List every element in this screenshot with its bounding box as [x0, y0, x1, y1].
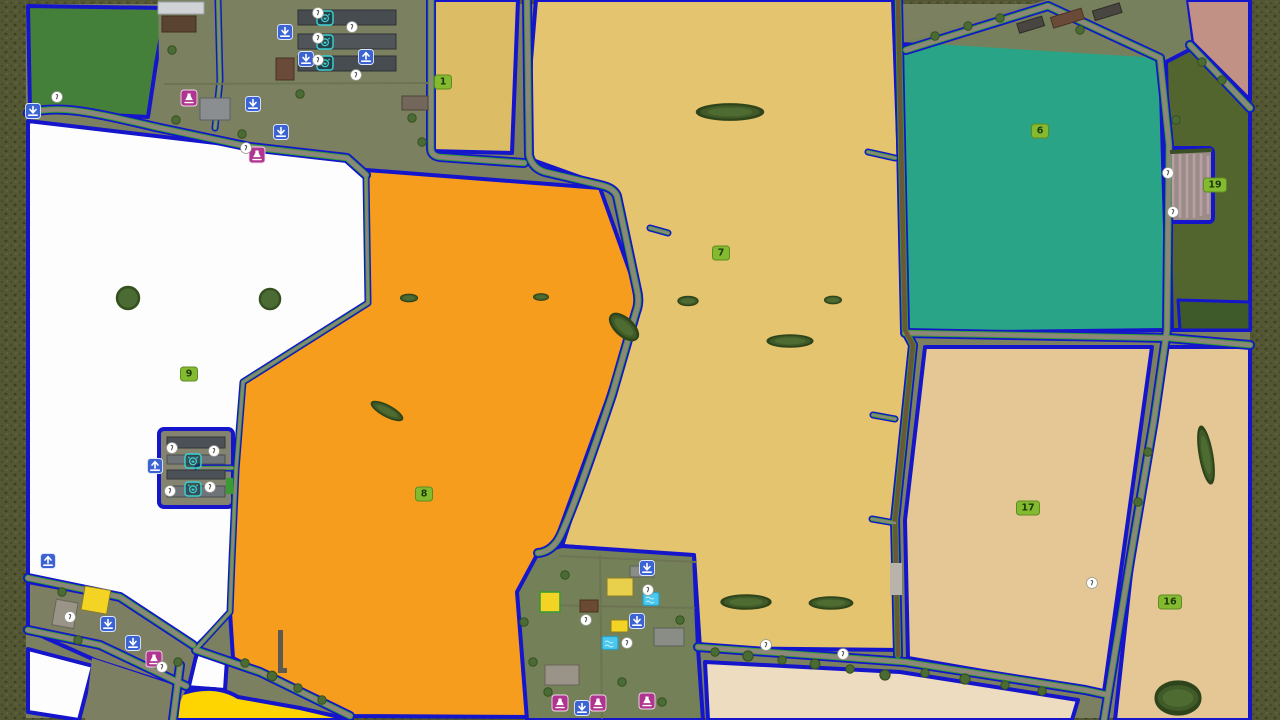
- point-of-interest-icon[interactable]: [838, 649, 849, 660]
- point-of-interest-icon[interactable]: [581, 615, 592, 626]
- field-topleft-green: [28, 6, 166, 117]
- pole-foot: [278, 668, 287, 673]
- point-of-interest-icon[interactable]: [205, 482, 216, 493]
- field-label-8: 8: [416, 487, 433, 501]
- farm-map-screen: 1 6 7 8 9 16 17 19: [0, 0, 1280, 720]
- hedge: [678, 297, 698, 306]
- point-of-interest-icon[interactable]: [65, 612, 76, 623]
- hedge: [768, 335, 812, 347]
- sell-point-icon[interactable]: [274, 125, 289, 140]
- production-point-icon[interactable]: [181, 90, 197, 106]
- field-label-text: 8: [421, 489, 428, 500]
- production-point-icon[interactable]: [590, 695, 606, 711]
- hedge: [534, 294, 549, 301]
- hedge: [722, 595, 770, 609]
- hedge: [825, 296, 842, 304]
- pig-pen-icon[interactable]: [185, 482, 201, 496]
- sell-point-icon[interactable]: [26, 104, 41, 119]
- point-of-interest-icon[interactable]: [313, 55, 324, 66]
- field-label-text: 6: [1037, 126, 1044, 137]
- field-label-text: 9: [186, 369, 193, 380]
- sell-point-icon[interactable]: [278, 25, 293, 40]
- point-of-interest-icon[interactable]: [761, 640, 772, 651]
- point-of-interest-icon[interactable]: [241, 143, 252, 154]
- field-label-7: 7: [713, 246, 730, 260]
- sell-point-icon[interactable]: [246, 97, 261, 112]
- field-label-19: 19: [1204, 178, 1227, 192]
- point-of-interest-icon[interactable]: [157, 662, 168, 673]
- hedge: [401, 294, 418, 302]
- field-label-text: 7: [718, 248, 725, 259]
- field-label-1: 1: [435, 75, 452, 89]
- field-label-17: 17: [1017, 501, 1040, 515]
- point-of-interest-icon[interactable]: [313, 33, 324, 44]
- bridge-segment: [890, 563, 902, 595]
- tree-clump: [1156, 683, 1200, 714]
- field-label-9: 9: [181, 367, 198, 381]
- point-of-interest-icon[interactable]: [351, 70, 362, 81]
- tree: [260, 289, 280, 309]
- farm-map: 1 6 7 8 9 16 17 19: [0, 0, 1280, 720]
- point-of-interest-icon[interactable]: [622, 638, 633, 649]
- point-of-interest-icon[interactable]: [1168, 207, 1179, 218]
- point-of-interest-icon[interactable]: [1087, 578, 1098, 589]
- sell-point-icon[interactable]: [630, 614, 645, 629]
- pool-icon[interactable]: [602, 637, 618, 650]
- field-label-text: 19: [1208, 180, 1221, 191]
- sell-point-icon[interactable]: [575, 701, 590, 716]
- load-point-icon[interactable]: [41, 554, 56, 569]
- sell-point-icon[interactable]: [299, 52, 314, 67]
- load-point-icon[interactable]: [359, 50, 374, 65]
- field-label-16: 16: [1159, 595, 1182, 609]
- point-of-interest-icon[interactable]: [209, 446, 220, 457]
- production-point-icon[interactable]: [639, 693, 655, 709]
- production-point-icon[interactable]: [552, 695, 568, 711]
- field-label-text: 1: [440, 77, 447, 88]
- field-label-text: 17: [1021, 503, 1034, 514]
- pole: [278, 630, 283, 672]
- point-of-interest-icon[interactable]: [347, 22, 358, 33]
- sell-point-icon[interactable]: [640, 561, 655, 576]
- tree: [117, 287, 139, 309]
- sell-point-icon[interactable]: [126, 636, 141, 651]
- pig-pen-icon[interactable]: [185, 454, 201, 468]
- pond-dark: [1178, 300, 1250, 330]
- point-of-interest-icon[interactable]: [1163, 168, 1174, 179]
- point-of-interest-icon[interactable]: [167, 443, 178, 454]
- load-point-icon[interactable]: [148, 459, 163, 474]
- hedge: [810, 597, 852, 609]
- field-label-6: 6: [1032, 124, 1049, 138]
- field-label-text: 16: [1163, 597, 1177, 608]
- point-of-interest-icon[interactable]: [165, 486, 176, 497]
- hedge: [698, 104, 762, 119]
- point-of-interest-icon[interactable]: [313, 8, 324, 19]
- sell-point-icon[interactable]: [101, 617, 116, 632]
- point-of-interest-icon[interactable]: [52, 92, 63, 103]
- point-of-interest-icon[interactable]: [643, 585, 654, 596]
